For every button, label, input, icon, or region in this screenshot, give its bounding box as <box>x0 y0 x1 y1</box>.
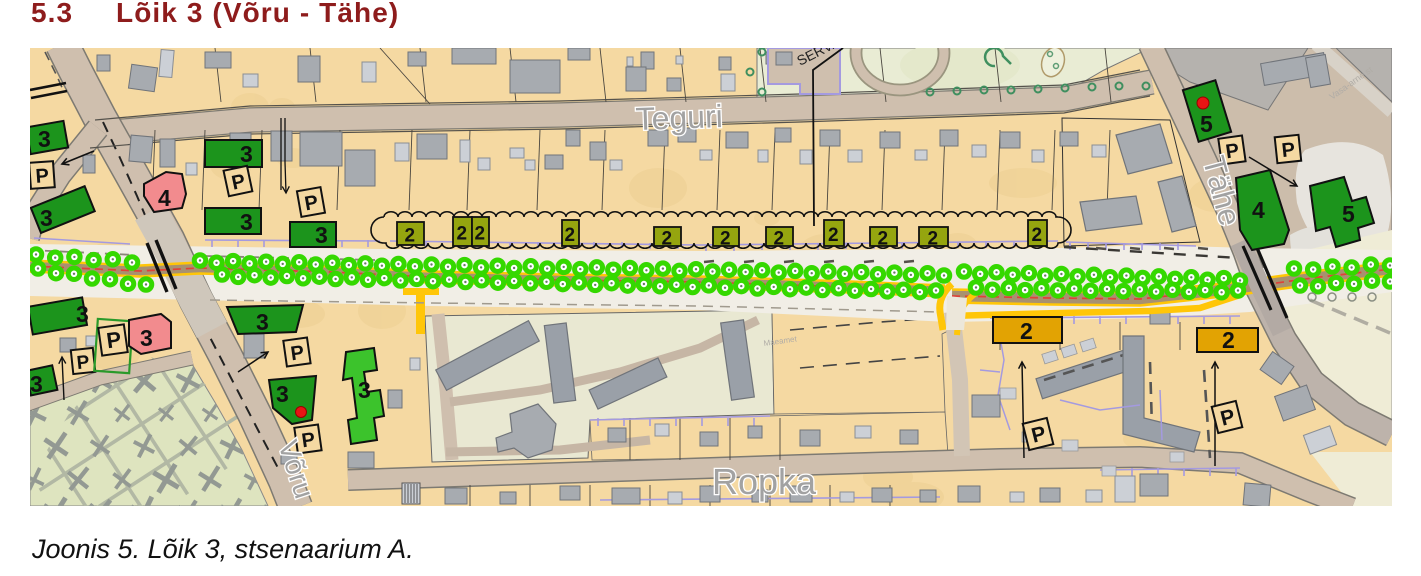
svg-text:2: 2 <box>1032 225 1043 246</box>
svg-text:3: 3 <box>38 126 51 152</box>
svg-text:2: 2 <box>720 229 731 250</box>
svg-text:2: 2 <box>405 226 416 247</box>
svg-text:2: 2 <box>774 229 785 250</box>
svg-text:Ropka: Ropka <box>712 461 817 502</box>
svg-text:2: 2 <box>457 224 468 245</box>
svg-text:5: 5 <box>1342 201 1355 227</box>
svg-text:3: 3 <box>30 371 43 397</box>
svg-text:2: 2 <box>475 224 486 245</box>
svg-text:3: 3 <box>256 309 269 335</box>
svg-text:P: P <box>1281 139 1297 162</box>
svg-text:Teguri: Teguri <box>635 98 723 137</box>
svg-text:4: 4 <box>1252 197 1265 223</box>
svg-text:2: 2 <box>928 229 939 250</box>
svg-text:3: 3 <box>76 301 89 327</box>
svg-text:3: 3 <box>315 222 328 248</box>
svg-text:P: P <box>35 165 50 188</box>
svg-text:P: P <box>76 352 91 374</box>
svg-text:3: 3 <box>40 205 53 231</box>
svg-text:2: 2 <box>662 229 673 250</box>
svg-text:3: 3 <box>240 141 253 167</box>
svg-text:2: 2 <box>1222 327 1235 353</box>
svg-text:4: 4 <box>158 185 171 211</box>
svg-text:3: 3 <box>358 377 371 403</box>
svg-text:5: 5 <box>1200 111 1213 137</box>
svg-text:3: 3 <box>276 381 289 407</box>
svg-text:3: 3 <box>140 325 153 351</box>
svg-text:2: 2 <box>828 225 839 246</box>
svg-text:3: 3 <box>240 209 253 235</box>
svg-text:2: 2 <box>1020 318 1033 344</box>
svg-text:2: 2 <box>878 229 889 250</box>
svg-text:2: 2 <box>565 225 576 246</box>
